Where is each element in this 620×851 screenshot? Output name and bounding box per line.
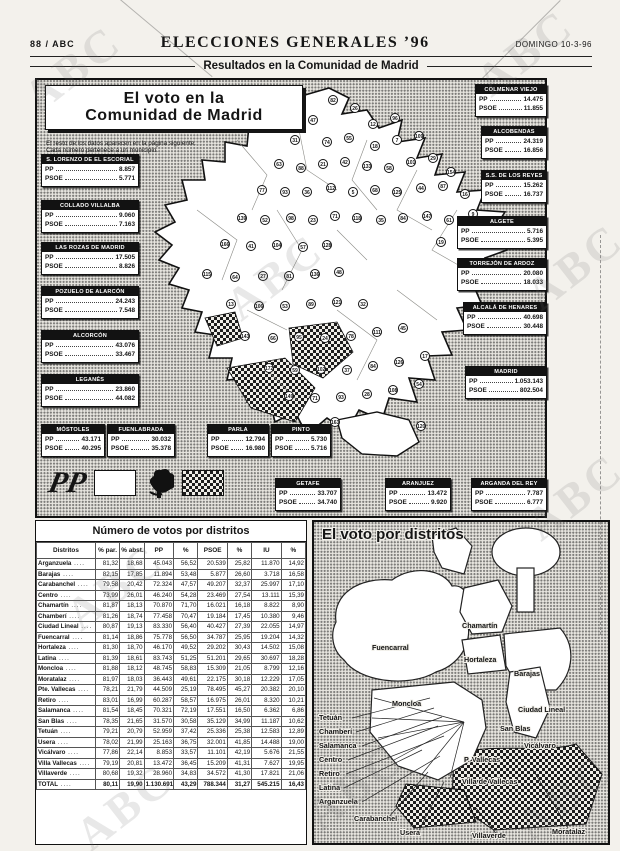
district-label: Carabanchel — [354, 814, 397, 823]
psoe-votes: PSOE7.548 — [45, 307, 135, 316]
district-name: Centro — [37, 590, 96, 601]
psoe-votes: PSOE16.980 — [211, 445, 265, 454]
municipality-name: LAS ROZAS DE MADRID — [42, 243, 138, 252]
pp-votes: PP24.319 — [485, 138, 543, 147]
table-row: Moratalaz81,9718,0336.44349,6122.17530,1… — [37, 674, 306, 685]
table-row: Usera78,0221,9925.16336,7532.00141,8514.… — [37, 737, 306, 748]
masthead: 88 / ABC ELECCIONES GENERALES ’96 DOMING… — [30, 34, 592, 52]
table-row: Hortaleza81,3018,7046.17049,5229.20230,4… — [37, 643, 306, 654]
municipality-name: ALCORCÓN — [42, 331, 138, 340]
table-row: San Blas78,3521,6531.57030,5835.12934,99… — [37, 716, 306, 727]
district-name: Ciudad Lineal — [37, 622, 96, 633]
municipality-name: GETAFE — [276, 479, 340, 488]
district-map: FuencarralChamartínHortalezaBarajasMoncl… — [314, 522, 608, 843]
district-name: Arganzuela — [37, 559, 96, 570]
municipality-name: S.S. DE LOS REYES — [482, 171, 546, 180]
column-header: % par. — [95, 543, 119, 559]
district-label: P. Vallecas — [464, 755, 500, 764]
district-label: Villaverde — [472, 831, 506, 840]
votes-table-title-bar: Número de votos por distritos — [36, 521, 306, 542]
municipality-result-box: ALGETEPP5.716PSOE5.395 — [457, 216, 547, 249]
section-rule: Resultados en la Comunidad de Madrid — [30, 60, 592, 72]
district-name: Latina — [37, 653, 96, 664]
district-label: Vicálvaro — [524, 741, 556, 750]
district-name: Retiro — [37, 695, 96, 706]
district-name: Villaverde — [37, 769, 96, 780]
table-row: Centro73,9926,0146.24054,2823.46927,5413… — [37, 590, 306, 601]
pp-votes: PP8.857 — [45, 166, 135, 175]
psoe-votes: PSOE7.163 — [45, 221, 135, 230]
district-map-title: El voto por distritos — [322, 526, 464, 543]
table-row: TOTAL80,1119,901.130.69143,29788.34431,2… — [37, 779, 306, 790]
district-label: Moncloa — [392, 699, 422, 708]
region-map-panel: 8226471296317455187109638821421335810129… — [35, 78, 547, 518]
municipality-results-layer: S. LORENZO DE EL ESCORIALPP8.857PSOE5.77… — [37, 80, 549, 520]
district-name: Barajas — [37, 569, 96, 580]
pp-votes: PP12.794 — [211, 436, 265, 445]
district-name: Vicálvaro — [37, 748, 96, 759]
municipality-name: ALCALÁ DE HENARES — [464, 303, 546, 312]
pp-votes: PP1.053.143 — [469, 378, 543, 387]
municipality-result-box: ALCOBENDASPP24.319PSOE16.856 — [481, 126, 547, 159]
municipality-result-box: MADRIDPP1.053.143PSOE802.504 — [465, 366, 547, 399]
district-label: Retiro — [319, 769, 340, 778]
district-label: Chamartín — [462, 621, 498, 630]
pp-votes: PP5.730 — [275, 436, 327, 445]
district-label: Salamanca — [319, 741, 358, 750]
table-row: Moncloa81,8818,1248.74558,8315.30921,058… — [37, 664, 306, 675]
pp-votes: PP33.707 — [279, 490, 337, 499]
municipality-name: FUENLABRADA — [108, 425, 174, 434]
municipality-name: MADRID — [466, 367, 546, 376]
table-row: Barajas82,1517,8511.89453,485.87726,603.… — [37, 569, 306, 580]
municipality-name: ALCOBENDAS — [482, 127, 546, 136]
municipality-name: ALGETE — [458, 217, 546, 226]
municipality-result-box: COLLADO VILLALBAPP9.060PSOE7.163 — [41, 200, 139, 233]
votes-by-district-table: Distritos% par.% abst.PP%PSOE%IU% Arganz… — [36, 542, 306, 790]
district-name: Pte. Vallecas — [37, 685, 96, 696]
column-header: % — [227, 543, 251, 559]
pp-votes: PP40.698 — [467, 314, 543, 323]
municipality-result-box: TORREJÓN DE ARDOZPP20.080PSOE18.033 — [457, 258, 547, 291]
psoe-votes: PSOE33.467 — [45, 351, 135, 360]
municipality-result-box: LAS ROZAS DE MADRIDPP17.505PSOE8.826 — [41, 242, 139, 275]
municipality-name: MÓSTOLES — [42, 425, 104, 434]
masthead-rule — [30, 56, 592, 57]
table-row: Salamanca81,5418,4570.32172,1917.55116,5… — [37, 706, 306, 717]
district-label: Villa de Vallecas — [462, 777, 517, 786]
table-row: Tetuán79,2120,7952.95937,4225.33625,3812… — [37, 727, 306, 738]
pp-votes: PP20.080 — [461, 270, 543, 279]
pp-votes: PP24.243 — [45, 298, 135, 307]
municipality-name: ARGANDA DEL REY — [472, 479, 546, 488]
table-header-row: Distritos% par.% abst.PP%PSOE%IU% — [37, 543, 306, 559]
municipality-name: ARANJUEZ — [386, 479, 450, 488]
district-name: Usera — [37, 737, 96, 748]
rule-left — [30, 66, 195, 67]
table-row: Latina81,3918,6183.74351,2551.20129,6530… — [37, 653, 306, 664]
psoe-votes: PSOE8.826 — [45, 263, 135, 272]
table-row: Chamberí81,2618,7477.45870,4719.18417,45… — [37, 611, 306, 622]
municipality-name: TORREJÓN DE ARDOZ — [458, 259, 546, 268]
district-name: Chamartín — [37, 601, 96, 612]
pp-votes: PP43.171 — [45, 436, 101, 445]
municipality-result-box: ALCALÁ DE HENARESPP40.698PSOE30.448 — [463, 302, 547, 335]
table-row: Fuencarral81,1418,8675.77856,5034.78725,… — [37, 632, 306, 643]
district-label: Latina — [319, 783, 341, 792]
table-row: Vicálvaro77,8622,148.85333,5711.10142,19… — [37, 748, 306, 759]
pp-votes: PP5.716 — [461, 228, 543, 237]
district-label: Moratalaz — [552, 827, 586, 836]
psoe-color-swatch — [182, 470, 224, 496]
psoe-votes: PSOE40.295 — [45, 445, 101, 454]
section-title: Resultados en la Comunidad de Madrid — [203, 60, 418, 72]
column-header: % — [174, 543, 198, 559]
district-label: Fuencarral — [372, 643, 409, 652]
municipality-name: COLLADO VILLALBA — [42, 201, 138, 210]
district-label: Hortaleza — [464, 655, 497, 664]
psoe-votes: PSOE5.395 — [461, 237, 543, 246]
column-header: Distritos — [37, 543, 96, 559]
municipality-result-box: ALCORCÓNPP43.076PSOE33.467 — [41, 330, 139, 363]
district-name: Moncloa — [37, 664, 96, 675]
newspaper-page: 88 / ABC ELECCIONES GENERALES ’96 DOMING… — [0, 0, 620, 851]
table-row: Retiro83,0116,9960.28758,5716.97526,018.… — [37, 695, 306, 706]
district-label: Chamberí — [319, 727, 353, 736]
pp-votes: PP43.076 — [45, 342, 135, 351]
municipality-name: LEGANÉS — [42, 375, 138, 384]
psoe-votes: PSOE11.855 — [479, 105, 543, 114]
district-name: San Blas — [37, 716, 96, 727]
psoe-votes: PSOE18.033 — [461, 279, 543, 288]
table-row: Pte. Vallecas78,2121,7944.50925,1978.495… — [37, 685, 306, 696]
votes-table-panel: Número de votos por distritos Distritos%… — [35, 520, 307, 845]
municipality-name: S. LORENZO DE EL ESCORIAL — [42, 155, 138, 164]
pp-votes: PP9.060 — [45, 212, 135, 221]
table-row: Villa Vallecas79,1920,8113.47236,4515.20… — [37, 758, 306, 769]
municipality-result-box: ARANJUEZPP13.472PSOE9.920 — [385, 478, 451, 511]
table-row: Arganzuela81,3218,6845.04356,5220.53925,… — [37, 559, 306, 570]
district-name: Hortaleza — [37, 643, 96, 654]
municipality-result-box: COLMENAR VIEJOPP14.475PSOE11.855 — [475, 84, 547, 117]
table-row: Chamartín81,8718,1370.87071,7016.02116,1… — [37, 601, 306, 612]
psoe-votes: PSOE6.777 — [475, 499, 543, 508]
district-name: Chamberí — [37, 611, 96, 622]
column-header: IU — [252, 543, 281, 559]
municipality-result-box: ARGANDA DEL REYPP7.787PSOE6.777 — [471, 478, 547, 511]
municipality-result-box: MÓSTOLESPP43.171PSOE40.295 — [41, 424, 105, 457]
pp-votes: PP15.262 — [485, 182, 543, 191]
pp-votes: PP17.505 — [45, 254, 135, 263]
municipality-result-box: S.S. DE LOS REYESPP15.262PSOE16.737 — [481, 170, 547, 203]
municipality-result-box: GETAFEPP33.707PSOE34.740 — [275, 478, 341, 511]
municipality-name: POZUELO DE ALARCÓN — [42, 287, 138, 296]
psoe-votes: PSOE802.504 — [469, 387, 543, 396]
pp-votes: PP13.472 — [389, 490, 447, 499]
pp-color-swatch — [94, 470, 136, 496]
page-headline: ELECCIONES GENERALES ’96 — [161, 34, 430, 52]
map-legend: PP — [49, 462, 224, 504]
district-label: Centro — [319, 755, 343, 764]
psoe-votes: PSOE35.378 — [111, 445, 171, 454]
column-header: % — [281, 543, 305, 559]
column-header: PSOE — [198, 543, 227, 559]
municipality-name: PINTO — [272, 425, 330, 434]
psoe-votes: PSOE5.716 — [275, 445, 327, 454]
municipality-result-box: FUENLABRADAPP30.032PSOE35.378 — [107, 424, 175, 457]
district-label: San Blas — [500, 724, 530, 733]
municipality-result-box: POZUELO DE ALARCÓNPP24.243PSOE7.548 — [41, 286, 139, 319]
district-name: Moratalaz — [37, 674, 96, 685]
psoe-votes: PSOE30.448 — [467, 323, 543, 332]
dateline: DOMINGO 10-3-96 — [516, 40, 592, 49]
psoe-votes: PSOE34.740 — [279, 499, 337, 508]
district-name: Carabanchel — [37, 580, 96, 591]
district-name: Villa Vallecas — [37, 758, 96, 769]
psoe-votes: PSOE16.737 — [485, 191, 543, 200]
pp-votes: PP7.787 — [475, 490, 543, 499]
column-header: PP — [144, 543, 173, 559]
pp-logo: PP — [46, 468, 89, 498]
district-label: Usera — [400, 828, 421, 837]
pp-votes: PP30.032 — [111, 436, 171, 445]
municipality-result-box: PARLAPP12.794PSOE16.980 — [207, 424, 269, 457]
district-map-panel: El voto por distritos — [312, 520, 610, 845]
psoe-votes: PSOE9.920 — [389, 499, 447, 508]
municipality-result-box: LEGANÉSPP23.860PSOE44.082 — [41, 374, 139, 407]
psoe-votes: PSOE16.856 — [485, 147, 543, 156]
rule-right — [427, 66, 592, 67]
district-label: Ciudad Lineal — [518, 705, 565, 714]
table-row: Ciudad Lineal80,8719,1383.33056,4040.427… — [37, 622, 306, 633]
psoe-votes: PSOE5.771 — [45, 175, 135, 184]
district-name: Salamanca — [37, 706, 96, 717]
municipality-result-box: PINTOPP5.730PSOE5.716 — [271, 424, 331, 457]
table-row: Carabanchel79,5820,4272.32447,5749.20732… — [37, 580, 306, 591]
votes-table-title: Número de votos por distritos — [92, 525, 249, 537]
municipality-result-box: S. LORENZO DE EL ESCORIALPP8.857PSOE5.77… — [41, 154, 139, 187]
district-name: Tetuán — [37, 727, 96, 738]
district-name: Fuencarral — [37, 632, 96, 643]
district-label: Barajas — [514, 669, 540, 678]
pp-votes: PP14.475 — [479, 96, 543, 105]
district-label: Tetuán — [319, 713, 342, 722]
margin-marks — [600, 235, 601, 635]
column-header: % abst. — [120, 543, 144, 559]
municipality-name: COLMENAR VIEJO — [476, 85, 546, 94]
pp-votes: PP23.860 — [45, 386, 135, 395]
municipality-name: PARLA — [208, 425, 268, 434]
psoe-rose-fist-icon — [144, 466, 174, 500]
edition-page-number: 88 / ABC — [30, 39, 75, 49]
table-row: Villaverde80,6819,3228.96034,8334.57241,… — [37, 769, 306, 780]
district-label: Arganzuela — [319, 797, 359, 806]
psoe-votes: PSOE44.082 — [45, 395, 135, 404]
district-name: TOTAL — [37, 779, 96, 790]
